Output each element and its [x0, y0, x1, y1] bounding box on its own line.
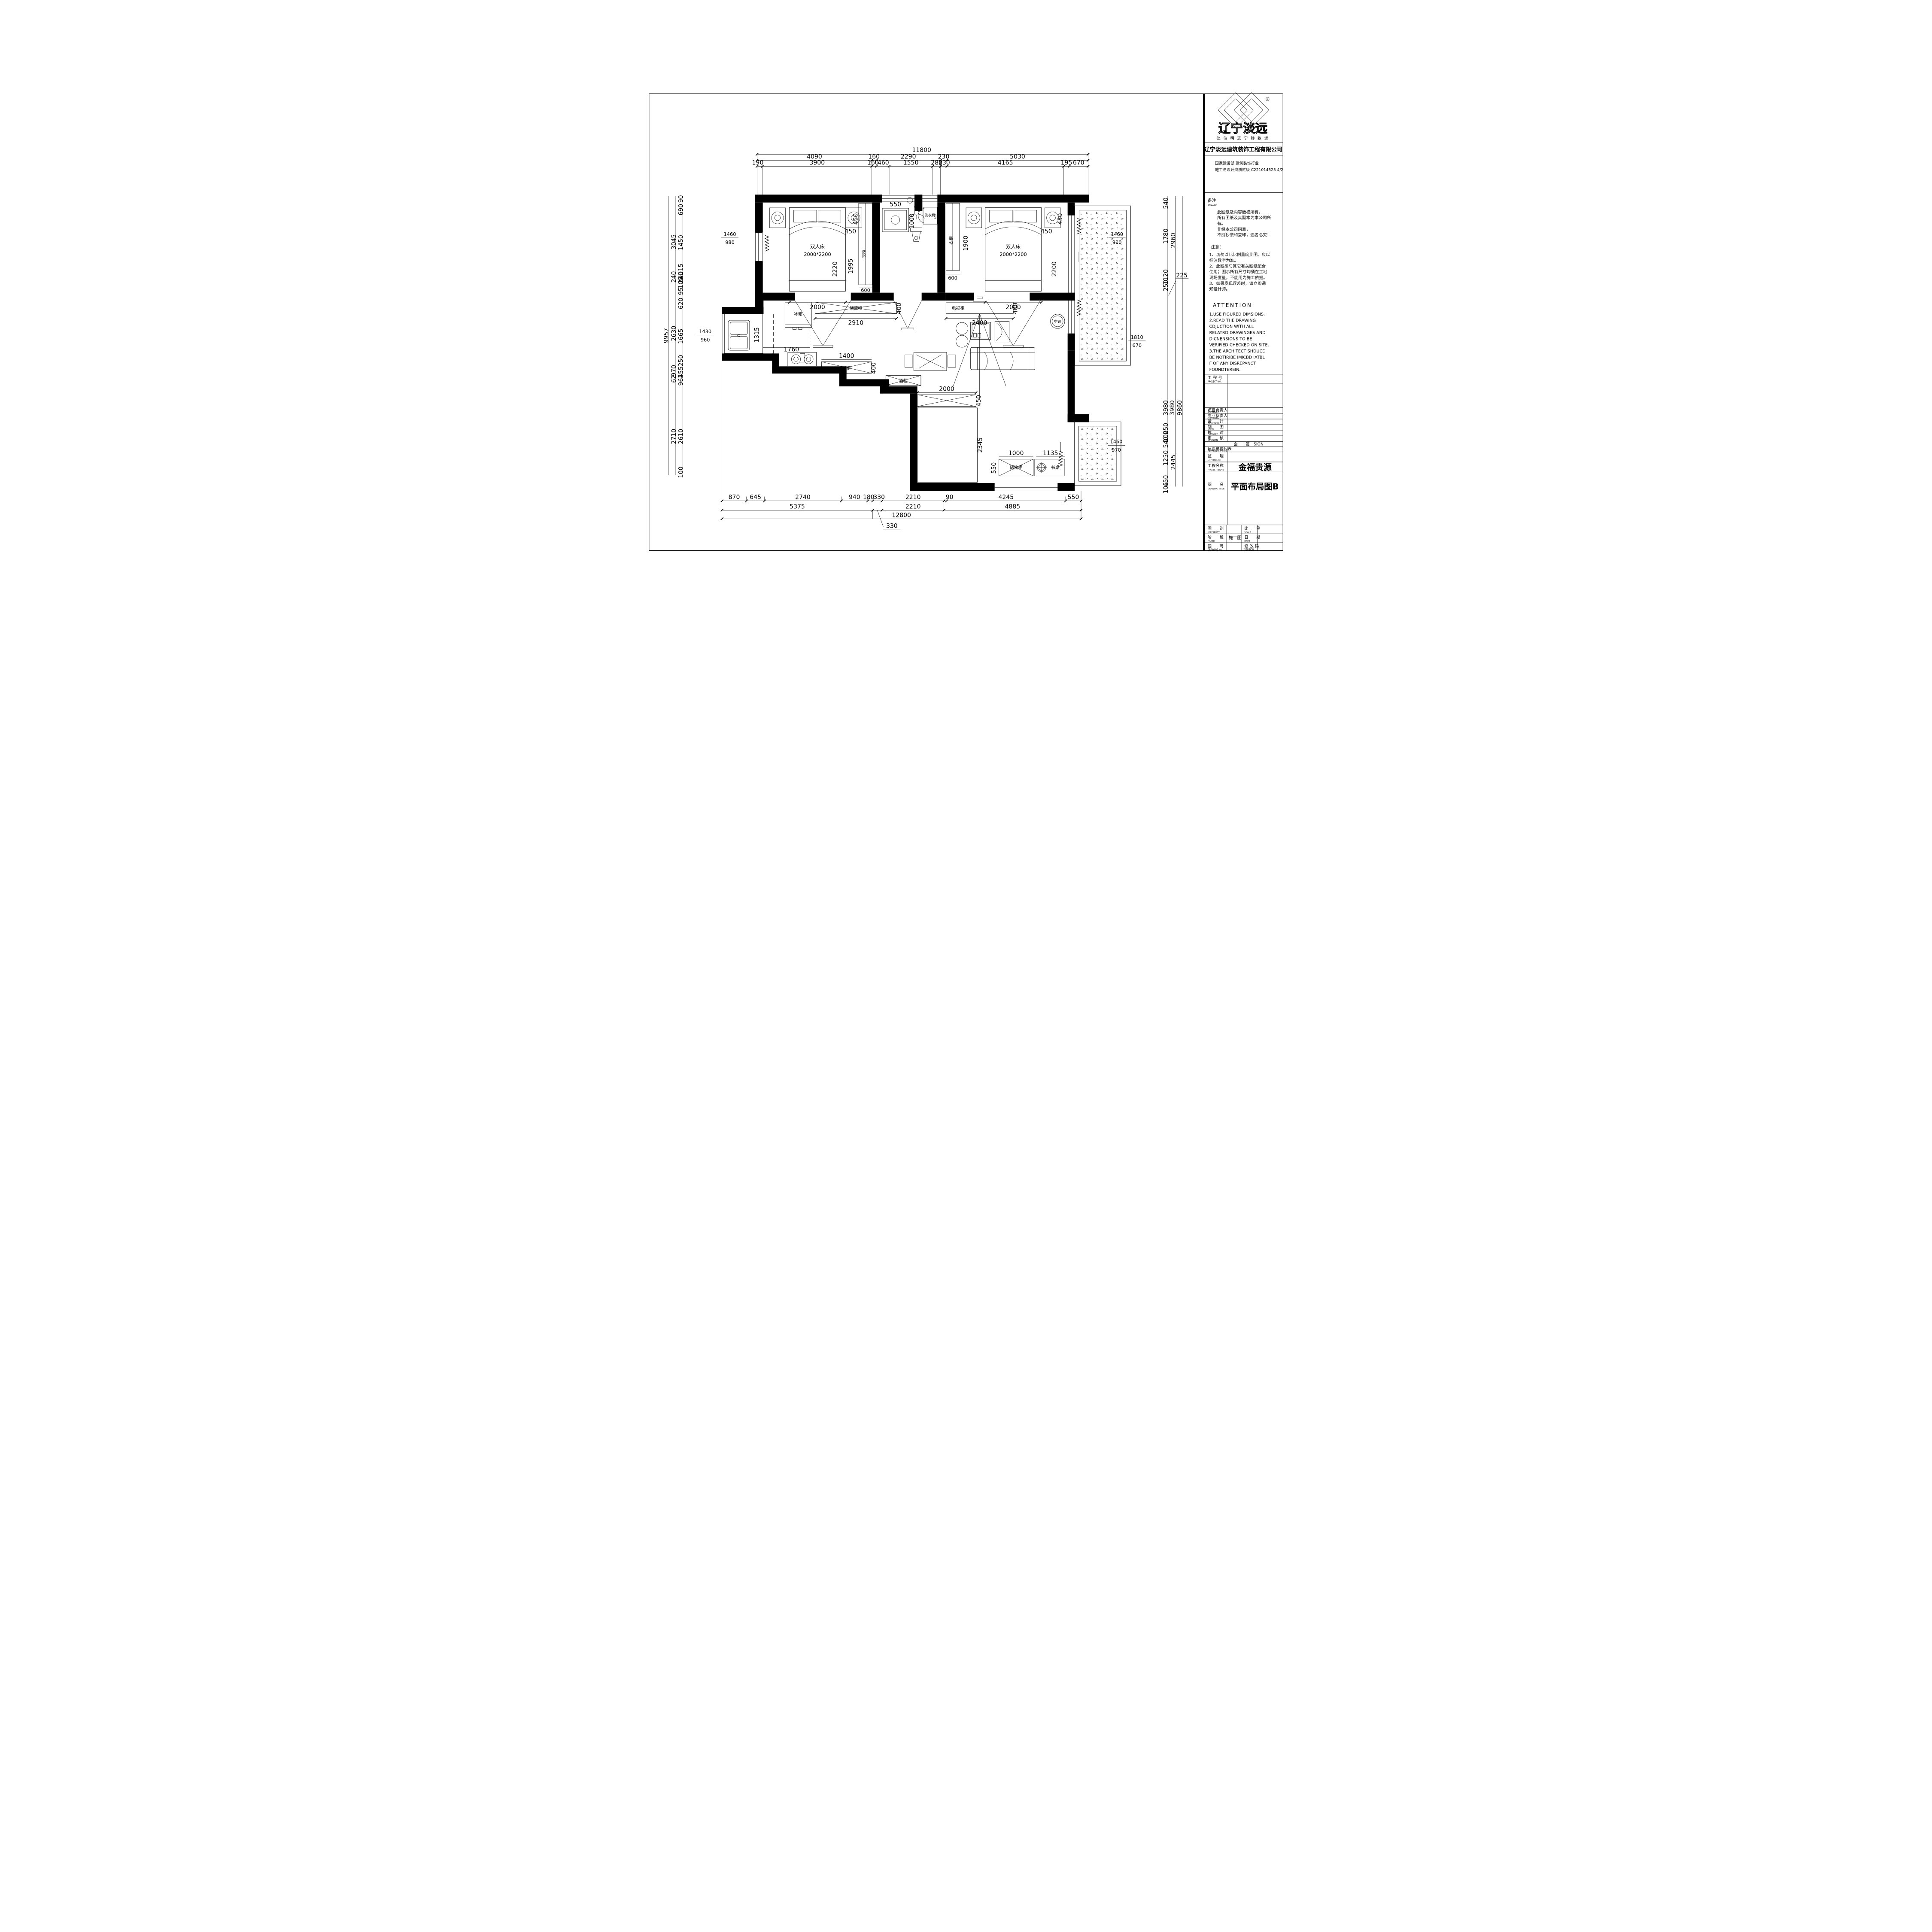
notice-line: 1、切勿以此比例量度此图。应以 [1209, 252, 1270, 258]
walls [722, 194, 1089, 491]
notice-line: 知设计师。 [1209, 287, 1230, 292]
row-project-no-en: PROJECT NO. [1208, 381, 1222, 383]
attention-line: 1.USE FIGURED DIMSIONS. [1209, 312, 1265, 317]
notice-line: 2、此图须与其它有关图纸配合 [1209, 264, 1266, 269]
dim: 550 [890, 201, 901, 208]
dim: 2740 [795, 494, 811, 501]
dim: 180 [863, 494, 875, 501]
copyright-line: 所有图纸及其副本为本公司所 [1217, 216, 1271, 221]
dim: 600 [948, 275, 957, 281]
row-speciality: 图 别 [1208, 526, 1224, 531]
row-approved1-en: APPROVED [1208, 411, 1219, 413]
dim: 12800 [892, 512, 911, 519]
title-block: ® 辽宁淡远 淡 泊 明 志 宁 静 致 远 辽宁淡远建筑装饰工程有限公司 国家… [1204, 93, 1283, 551]
dim-leader: 330 [886, 522, 898, 529]
dim: 4090 [807, 153, 822, 160]
dim: 970 [671, 365, 677, 377]
dim: 4885 [1005, 503, 1021, 510]
dim: 2220 [832, 261, 838, 277]
dim: 9957 [663, 328, 670, 343]
washer-label: 洗衣机 [925, 213, 935, 217]
company-name: 辽宁淡远建筑装饰工程有限公司 [1204, 146, 1282, 153]
wardrobe-label: 衣柜 [948, 236, 954, 245]
row-sign: 会 签 [1233, 441, 1249, 447]
storage-cabinet-label: 储藏柜 [849, 306, 862, 311]
attention-line: BE NOTIRIBE IMICBD IATBL [1209, 355, 1265, 360]
dim: 540 [1163, 437, 1170, 448]
dim: 230 [938, 153, 950, 160]
dim: 3045 [671, 234, 677, 250]
marker: 670 [1133, 343, 1142, 349]
dim: 95 [678, 287, 685, 295]
dim: 2400 [972, 320, 987, 327]
bed-label: 双人床 [1006, 243, 1021, 249]
notice-list: 1、切勿以此比例量度此图。应以 标注数字为准。 2、此图须与其它有关图纸配合 使… [1209, 252, 1270, 292]
row-project-name-en: PROJECT NAME [1208, 469, 1224, 471]
balcony-bottom-right [1075, 422, 1121, 486]
dim: 550 [990, 462, 997, 474]
row-revision-en: REVISION [1208, 439, 1218, 442]
windows [723, 195, 1074, 490]
dim: 2210 [905, 503, 921, 510]
dim: 330 [873, 494, 885, 501]
row-drawing-title: 图 名 [1208, 482, 1224, 487]
dim: 5030 [1010, 153, 1025, 160]
copyright-line: 非经本公司同意， [1217, 227, 1250, 232]
row-sign-en: SIGN [1254, 442, 1264, 447]
row-date-en: DATE [1244, 540, 1250, 543]
dim: 1315 [753, 327, 760, 343]
dim: 3900 [810, 159, 825, 166]
dim: 540 [1163, 197, 1170, 209]
notice-line: 现场度量，不能用为施工依据。 [1209, 275, 1267, 280]
dim: 2960 [1170, 233, 1177, 248]
ac-label: 空调 [1054, 319, 1061, 324]
dim: 600 [861, 287, 870, 293]
dim: 400 [870, 362, 877, 374]
dim: 1400 [839, 352, 854, 359]
dim: 3980 [1169, 400, 1176, 416]
dim: 1900 [963, 236, 969, 251]
dim: 250 [1163, 280, 1170, 292]
dim: 3980 [1163, 400, 1170, 416]
dim: 2200 [1051, 261, 1058, 277]
marker: 970 [1112, 447, 1121, 453]
row-date: 日 期 [1244, 535, 1260, 540]
dim: 400 [1012, 303, 1019, 314]
notice-line: 使用；图示所有尺寸均须在工地 [1209, 270, 1268, 275]
tv-cabinet-label: 电视柜 [952, 306, 965, 311]
marker: 1460 [1110, 439, 1123, 445]
row-version: 修 改 码 [1244, 544, 1259, 549]
dim: 90 [946, 494, 954, 501]
dim: 2000 [939, 386, 954, 393]
attention-title: ATTENTION [1213, 302, 1252, 308]
notice-line: 3、如果发现误差时，请立即通 [1209, 281, 1266, 286]
row-project-name: 工程名称 [1208, 463, 1224, 468]
brand-name: 辽宁淡远 [1218, 121, 1268, 135]
dim: 1250 [1163, 450, 1170, 466]
dim-leader: 225 [1176, 272, 1188, 279]
attention-line: RELATRD DRAWINGES AND [1209, 331, 1266, 335]
bed-label: 双人床 [810, 243, 825, 249]
dim: 105 [1163, 482, 1170, 494]
dim: 450 [1057, 213, 1064, 225]
desk-label: 书桌 [1051, 465, 1059, 471]
remark-label: 备注 [1208, 198, 1216, 204]
notice-line: 标注数字为准。 [1209, 258, 1239, 263]
copyright-note: 此图纸及内容版权所有， 所有图纸及其副本为本公司所 有。 非经本公司同意， 不能… [1217, 210, 1271, 237]
marker: 1460 [724, 231, 736, 237]
floorplan-svg: ® 辽宁淡远 淡 泊 明 志 宁 静 致 远 辽宁淡远建筑装饰工程有限公司 国家… [644, 0, 1288, 644]
copyright-line: 此图纸及内容版权所有， [1217, 210, 1263, 215]
dim: 870 [729, 494, 740, 501]
dim: 2210 [905, 494, 921, 501]
dim: 962 [678, 374, 685, 386]
dim: 450 [844, 228, 856, 235]
dim: 1135 [1043, 450, 1058, 457]
wardrobe-label: 衣柜 [861, 250, 867, 258]
bedroom-right: 双人床 2000*2200 衣柜 450 450 2200 1900 600 2… [946, 203, 1064, 347]
attention-line: 3.THE ARCHITECT SHDUCD [1209, 349, 1266, 354]
shoe-cabinet-label: 鞋柜 [842, 366, 851, 371]
dim: 450 [975, 395, 982, 407]
row-designed-en: DESIGNED [1208, 422, 1219, 425]
dim: 2345 [977, 437, 984, 453]
wine-cabinet-label: 酒柜 [899, 378, 908, 384]
dim: 550 [1068, 494, 1079, 501]
dim: 230 [939, 159, 950, 166]
cert-line1: 国家建设部 建筑装饰行业 [1215, 161, 1259, 166]
dim: 2290 [901, 153, 916, 160]
dim: 620 [678, 298, 685, 309]
titleblock-rows: 工 程 号 PROJECT NO. 项目负责人 APPROVED 专业负责人 A… [1208, 376, 1279, 551]
bathroom: 洗衣机 550 1000 [882, 197, 937, 330]
dims-left: 9957 3045 240 2630 970 62 2710 90 690 14… [663, 195, 738, 478]
attention-line: CDJUCTION WITH ALL [1209, 325, 1254, 329]
balcony-top-right [1075, 206, 1130, 365]
remark-label-en: REMARK [1208, 204, 1217, 207]
attention-line: FOUNDTEREIN. [1209, 368, 1241, 372]
project-name-value: 金福贵源 [1238, 462, 1272, 472]
dim: 2630 [671, 326, 677, 341]
dim: 645 [750, 494, 761, 501]
brand-slogan: 淡 泊 明 志 宁 静 致 远 [1217, 136, 1269, 141]
row-project-no: 工 程 号 [1208, 376, 1222, 380]
dim: 62 [671, 375, 677, 383]
dim: 90 [678, 195, 685, 203]
dim: 2000 [810, 304, 825, 311]
dim: 9860 [1177, 400, 1184, 416]
dim: 100 [678, 277, 685, 289]
living-room: 电视柜 2400 400 空调 酒柜 [886, 297, 1065, 399]
dim: 400 [896, 303, 902, 314]
drawing-title-value: 平面布局图B [1231, 482, 1279, 492]
dim: 240 [671, 271, 677, 283]
marker: 900 [1112, 240, 1122, 246]
dim: 100 [678, 467, 685, 478]
row-version-en: VERSION [1244, 548, 1254, 551]
study: 2000 450 2345 储物柜 书桌 1000 1135 550 [916, 386, 1065, 483]
dim: 1550 [903, 159, 919, 166]
registered-mark: ® [1265, 96, 1270, 102]
dim: 250 [678, 355, 685, 367]
marker: 960 [701, 337, 710, 343]
dims-bottom: 870 645 2740 940 180 330 2210 90 4245 55… [721, 361, 1082, 529]
dim: 195 [1061, 159, 1072, 166]
row-supervisor: 监 理 [1208, 453, 1224, 459]
attention-line: VERIFIED CHECKED ON SITE. [1209, 343, 1269, 348]
storage-cabinet2-label: 储物柜 [1010, 465, 1023, 471]
dim: 1665 [678, 329, 685, 344]
row-drawing-no: 图 号 [1208, 544, 1224, 549]
row-speciality-en: SPECIALITY [1208, 531, 1220, 534]
dim: 2910 [848, 320, 864, 327]
dim: 1995 [848, 258, 854, 274]
row-phase: 阶 段 [1208, 535, 1224, 540]
marker: 980 [725, 240, 735, 246]
dim: 460 [878, 159, 889, 166]
drawing-sheet: ® 辽宁淡远 淡 泊 明 志 宁 静 致 远 辽宁淡远建筑装饰工程有限公司 国家… [644, 0, 1288, 644]
row-checked-en: CHEORED [1208, 434, 1218, 436]
notice-title: 注意： [1211, 244, 1224, 249]
dim: 5375 [790, 503, 805, 510]
dim: 11800 [912, 147, 931, 154]
dim: 1000 [908, 213, 915, 229]
row-drawing-title-en: DRAWING TITLE [1208, 488, 1224, 490]
row-supervisor-en: SUPERVISOR [1208, 459, 1221, 462]
dim: 1780 [1163, 228, 1170, 244]
dim: 2445 [1170, 455, 1177, 470]
phase-value: 施工图 [1229, 535, 1242, 541]
dim: 450 [1041, 228, 1052, 235]
row-phase-en: PHASE [1208, 540, 1215, 543]
dim: 4165 [998, 159, 1013, 166]
marker: 1460 [1111, 231, 1123, 237]
attention-line: 2.READ THE DRAWING [1209, 318, 1256, 323]
row-scale-en: SCALE [1244, 531, 1251, 534]
dim: 160 [868, 153, 880, 160]
attention-list: 1.USE FIGURED DIMSIONS. 2.READ THE DRAWI… [1209, 312, 1269, 372]
row-scale: 比 例 [1244, 526, 1260, 531]
row-drawing-no-en: DRAWING No. [1208, 548, 1223, 551]
bed-size-label: 2000*2200 [804, 252, 831, 258]
attention-line: F OF ANY DISREPANCT [1209, 361, 1256, 366]
dim: 160 [867, 159, 879, 166]
dims-top: 11800 4090 160 2290 230 5030 190 3900 16… [752, 147, 1090, 194]
dim: 2610 [678, 429, 685, 444]
marker: 1810 [1131, 334, 1143, 340]
dim: 190 [752, 159, 764, 166]
attention-line: DICNENSIONS TO BE [1209, 337, 1252, 341]
fridge-label: 冰箱 [794, 311, 802, 317]
copyright-line: 不能抄袭和复印，违者必究！ [1217, 233, 1271, 238]
dim: 450 [852, 213, 859, 225]
marker: 1430 [699, 328, 711, 334]
dim: 1450 [678, 235, 685, 250]
copyright-line: 有。 [1217, 221, 1225, 226]
dim: 670 [1073, 159, 1084, 166]
bed-size-label: 2000*2200 [999, 252, 1027, 258]
dim: 690 [678, 204, 685, 216]
dim: 940 [849, 494, 860, 501]
row-draw-en: DRAW [1208, 428, 1214, 431]
dim: 4245 [999, 494, 1014, 501]
dim: 1000 [1009, 450, 1024, 457]
dim: 2710 [671, 429, 677, 444]
row-representative-en: REPRESEN TATIVE [1208, 450, 1227, 453]
cert-line2: 施工与设计资质贰级 C221014525 4/2 [1215, 167, 1283, 172]
